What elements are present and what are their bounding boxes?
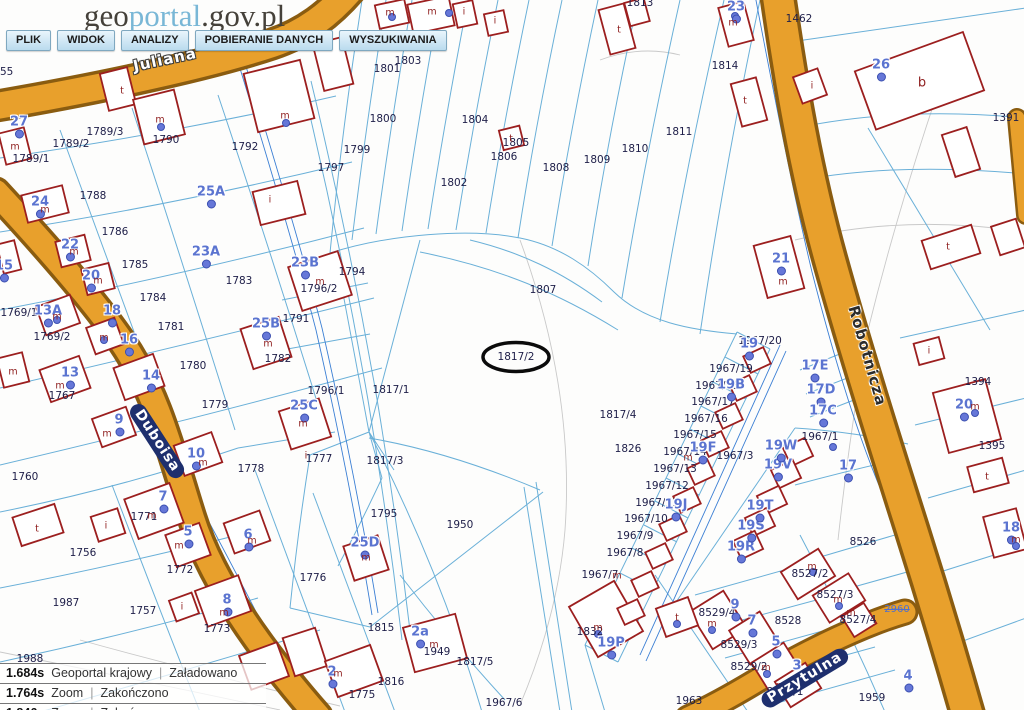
status-layer-name: Geoportal krajowy: [51, 666, 152, 680]
geoportal-logo: geoportal.gov.pl: [84, 0, 285, 34]
status-message: Załadowano: [169, 666, 237, 680]
status-row: 1.764s Zoom | Zakończono: [0, 683, 266, 703]
status-separator: |: [90, 686, 93, 700]
logo-part-govpl: .gov.pl: [201, 0, 285, 33]
logo-part-portal: portal: [129, 0, 201, 33]
status-time: 1.764s: [6, 686, 44, 700]
status-separator: |: [159, 666, 162, 680]
map-graphics: [0, 0, 1024, 710]
main-menu-bar: PLIKWIDOKANALIZYPOBIERANIE DANYCHWYSZUKI…: [6, 30, 447, 51]
status-row: 1.684s Geoportal krajowy | Załadowano: [0, 663, 266, 683]
menu-button[interactable]: PLIK: [6, 30, 51, 51]
menu-button[interactable]: POBIERANIE DANYCH: [195, 30, 334, 51]
status-layer-name: Zoom: [51, 706, 83, 710]
status-bar: 1.684s Geoportal krajowy | Załadowano 1.…: [0, 663, 266, 710]
status-row: 1.846s Zoom | Zakończono: [0, 703, 266, 710]
selected-parcel-highlight: [483, 343, 549, 372]
status-separator: |: [90, 706, 93, 710]
geoportal-app-window: 17551789/31789/21789/1179017921788178617…: [0, 0, 1024, 710]
logo-part-geo: geo: [84, 0, 129, 33]
status-time: 1.846s: [6, 706, 44, 710]
menu-button[interactable]: WYSZUKIWANIA: [339, 30, 446, 51]
status-message: Zakończono: [100, 706, 168, 710]
menu-button[interactable]: ANALIZY: [121, 30, 189, 51]
status-layer-name: Zoom: [51, 686, 83, 700]
menu-button[interactable]: WIDOK: [57, 30, 115, 51]
status-time: 1.684s: [6, 666, 44, 680]
status-message: Zakończono: [100, 686, 168, 700]
